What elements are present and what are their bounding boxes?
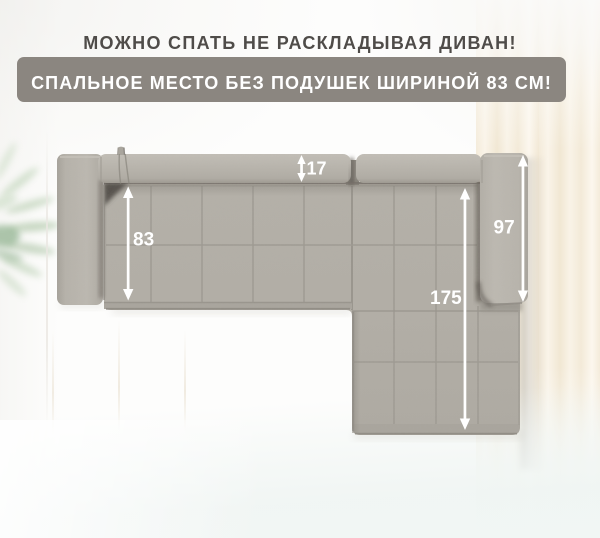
svg-text:83: 83 bbox=[133, 230, 154, 251]
svg-text:17: 17 bbox=[307, 158, 327, 178]
svg-text:175: 175 bbox=[430, 288, 462, 309]
svg-text:97: 97 bbox=[494, 218, 515, 239]
